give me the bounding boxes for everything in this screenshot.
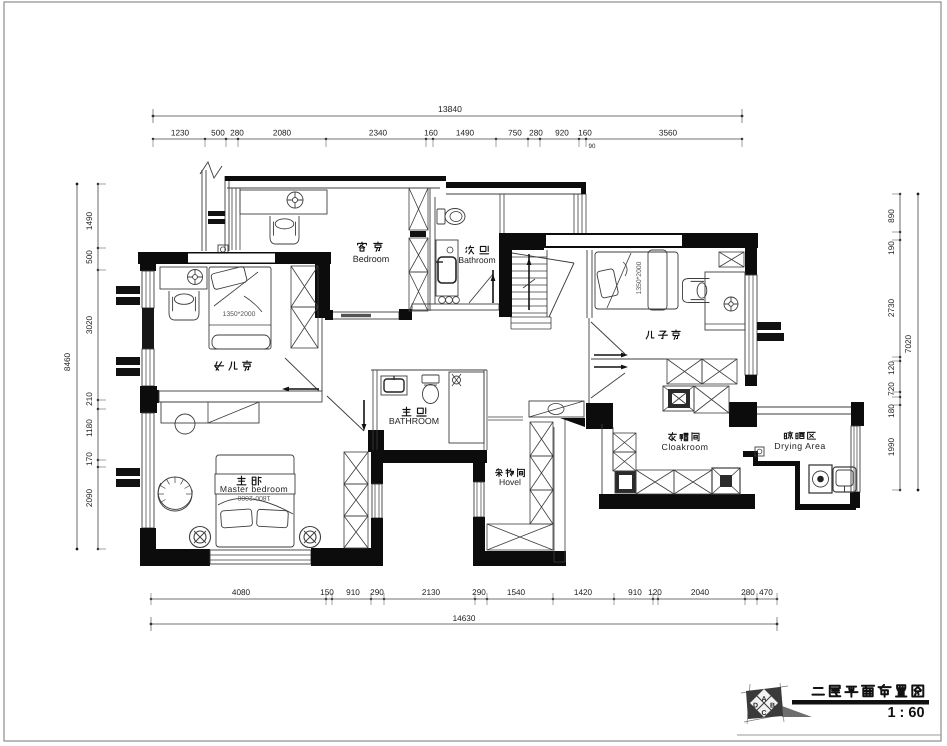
svg-text:90: 90 <box>589 143 596 150</box>
svg-text:Hovel: Hovel <box>499 477 521 487</box>
svg-text:2090: 2090 <box>85 488 94 507</box>
svg-text:910: 910 <box>628 588 642 597</box>
svg-text:BATHROOM: BATHROOM <box>389 416 439 426</box>
svg-text:Master bedroom: Master bedroom <box>220 484 288 494</box>
svg-text:Bedroom: Bedroom <box>353 254 390 264</box>
svg-text:1180: 1180 <box>85 419 94 437</box>
svg-text:B: B <box>770 703 775 710</box>
svg-text:170: 170 <box>85 452 94 466</box>
svg-text:7020: 7020 <box>904 334 913 353</box>
svg-text:A: A <box>761 696 766 703</box>
svg-text:1350*2000: 1350*2000 <box>636 261 643 294</box>
svg-text:8460: 8460 <box>63 352 72 371</box>
svg-text:2080: 2080 <box>273 129 292 138</box>
svg-text:Drying Area: Drying Area <box>774 441 825 451</box>
svg-text:120: 120 <box>648 588 662 597</box>
svg-text:13840: 13840 <box>438 104 462 114</box>
svg-text:500: 500 <box>211 129 225 138</box>
svg-text:210: 210 <box>85 392 94 406</box>
svg-text:3020: 3020 <box>85 315 94 334</box>
svg-text:280: 280 <box>741 588 755 597</box>
svg-text:1230: 1230 <box>171 129 190 138</box>
svg-text:1800*2000: 1800*2000 <box>237 494 270 501</box>
svg-text:1490: 1490 <box>456 129 475 138</box>
svg-text:1 : 60: 1 : 60 <box>887 705 924 721</box>
svg-text:470: 470 <box>759 588 773 597</box>
svg-text:1990: 1990 <box>887 437 896 456</box>
svg-text:150: 150 <box>320 588 334 597</box>
svg-text:280: 280 <box>230 129 244 138</box>
svg-text:Bathroom: Bathroom <box>458 255 495 265</box>
svg-text:190: 190 <box>887 241 896 255</box>
svg-text:180: 180 <box>887 404 896 418</box>
svg-text:2130: 2130 <box>422 588 441 597</box>
svg-text:750: 750 <box>508 129 522 138</box>
svg-text:1540: 1540 <box>507 588 526 597</box>
svg-text:1350*2000: 1350*2000 <box>223 311 256 318</box>
svg-text:280: 280 <box>529 129 543 138</box>
svg-text:14630: 14630 <box>453 614 476 623</box>
svg-text:3560: 3560 <box>659 129 678 138</box>
svg-text:910: 910 <box>346 588 360 597</box>
svg-text:720: 720 <box>887 382 896 396</box>
svg-text:1490: 1490 <box>85 211 94 230</box>
svg-text:160: 160 <box>424 129 438 138</box>
svg-text:4080: 4080 <box>232 588 251 597</box>
svg-text:2040: 2040 <box>691 588 710 597</box>
svg-text:2340: 2340 <box>369 129 388 138</box>
svg-text:D: D <box>753 703 758 710</box>
svg-text:290: 290 <box>370 588 384 597</box>
svg-text:890: 890 <box>887 209 896 223</box>
svg-text:290: 290 <box>472 588 486 597</box>
svg-text:1420: 1420 <box>574 588 593 597</box>
svg-text:160: 160 <box>578 129 592 138</box>
svg-text:C: C <box>761 710 766 717</box>
svg-text:920: 920 <box>555 129 569 138</box>
svg-text:Cloakroom: Cloakroom <box>661 442 708 452</box>
svg-text:2730: 2730 <box>887 298 896 317</box>
svg-text:500: 500 <box>85 250 94 264</box>
svg-text:120: 120 <box>887 361 896 375</box>
